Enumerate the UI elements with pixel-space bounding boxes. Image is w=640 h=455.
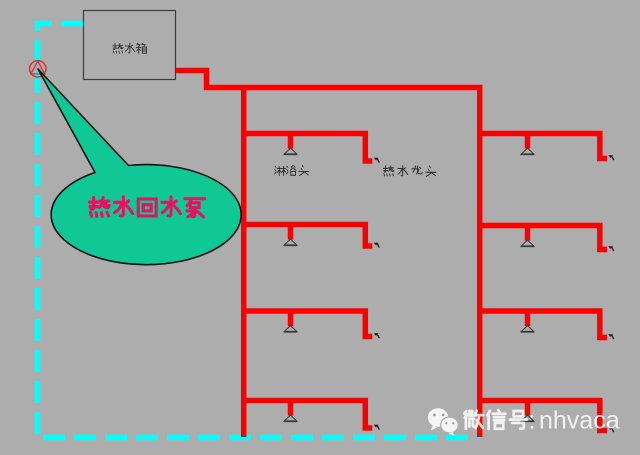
svg-text::: : (529, 407, 536, 435)
svg-text:nhvaca: nhvaca (539, 407, 620, 435)
